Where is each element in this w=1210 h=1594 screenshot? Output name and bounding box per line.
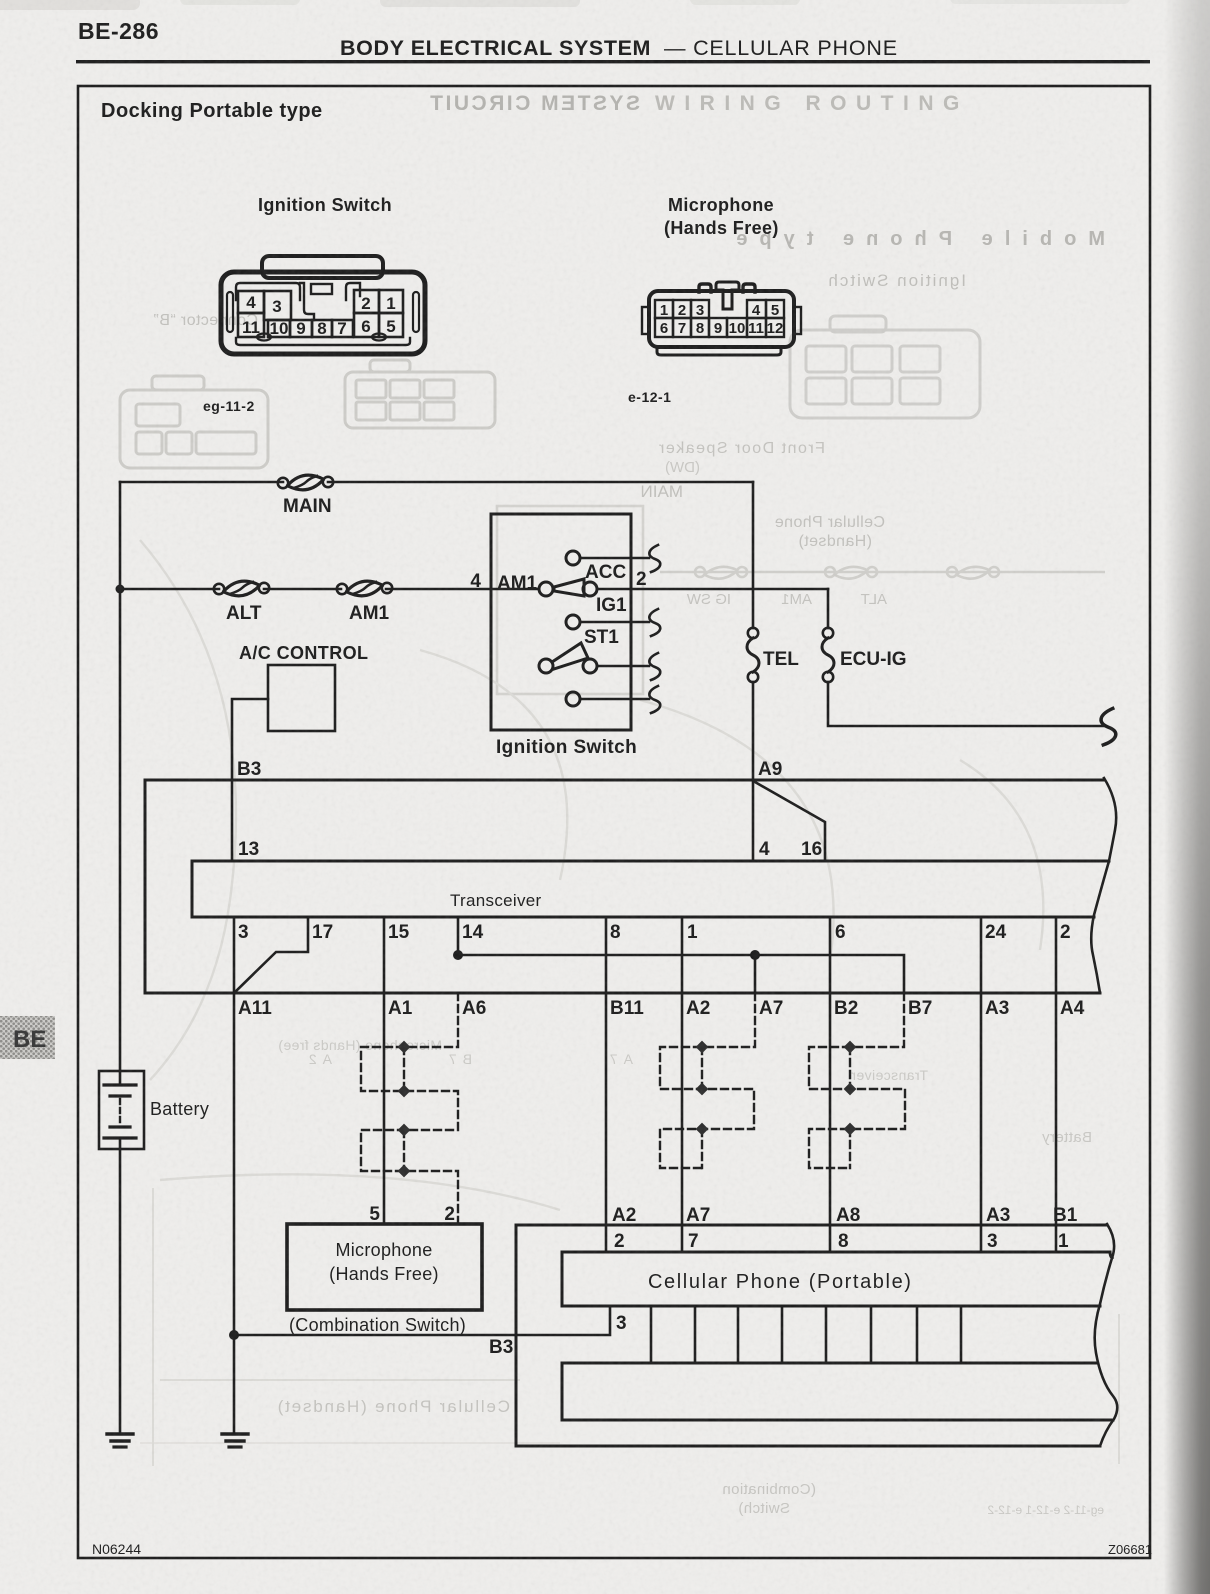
svg-text:BE: BE: [13, 1026, 46, 1053]
